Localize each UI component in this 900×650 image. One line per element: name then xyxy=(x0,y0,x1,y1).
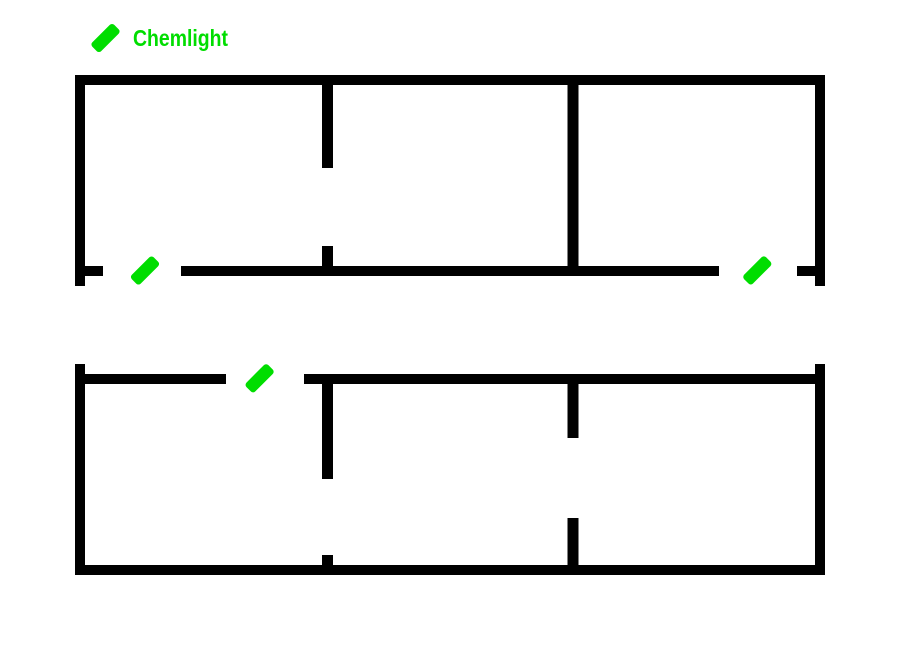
svg-text:Chemlight: Chemlight xyxy=(133,25,228,51)
